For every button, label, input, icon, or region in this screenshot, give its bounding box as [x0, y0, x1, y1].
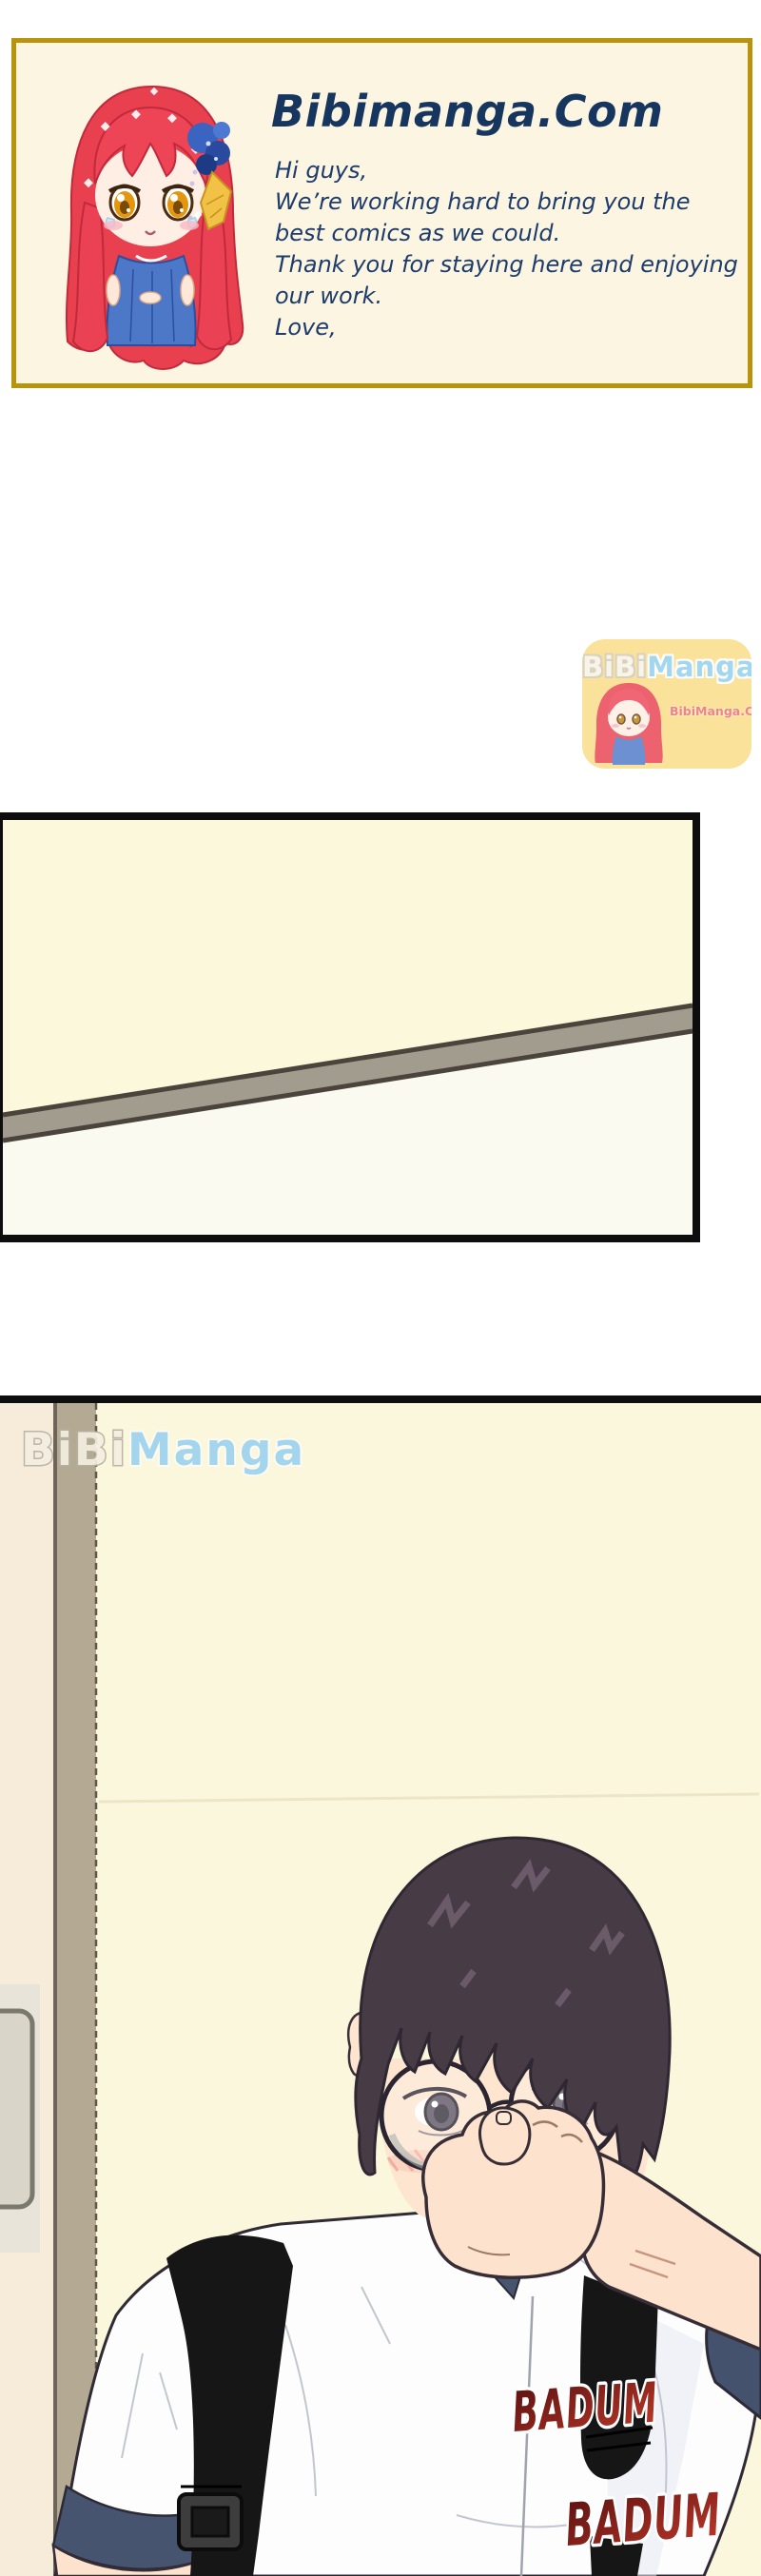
bibimanga-sticker: BiBiManga BibiManga.Com — [582, 639, 751, 769]
panel-top-border — [0, 1395, 761, 1403]
sfx-badum-1: BADUM — [510, 2371, 659, 2446]
scene-panel: BiBiManga — [0, 1393, 761, 2576]
sfx-badum-2: BADUM — [563, 2481, 723, 2560]
mascot-chibi-girl-icon — [52, 69, 252, 383]
message-line: our work. — [275, 281, 743, 312]
watermark-part2: Manga — [127, 1424, 305, 1476]
watermark: BiBiManga — [21, 1424, 305, 1476]
welcome-message: Hi guys, We’re working hard to bring you… — [275, 155, 743, 343]
header-notice-box: Bibimanga.Com Hi guys, We’re working har… — [11, 38, 752, 388]
hallway-panel-art — [0, 812, 700, 1242]
sticker-chibi-icon — [588, 677, 670, 769]
mascot-avatar — [52, 69, 252, 383]
scene-panel-art: BiBiManga — [0, 1393, 761, 2576]
sticker-url: BibiManga.Com — [670, 704, 751, 718]
message-line: best comics as we could. — [275, 218, 743, 249]
message-line: We’re working hard to bring you the — [275, 186, 743, 218]
hallway-panel — [0, 812, 700, 1242]
watermark-part1: BiBi — [21, 1424, 127, 1476]
door-window — [0, 1984, 40, 2253]
message-line: Hi guys, — [275, 155, 743, 186]
message-line: Thank you for staying here and enjoying — [275, 249, 743, 281]
site-title: Bibimanga.Com — [271, 86, 663, 137]
message-line: Love, — [275, 312, 743, 343]
